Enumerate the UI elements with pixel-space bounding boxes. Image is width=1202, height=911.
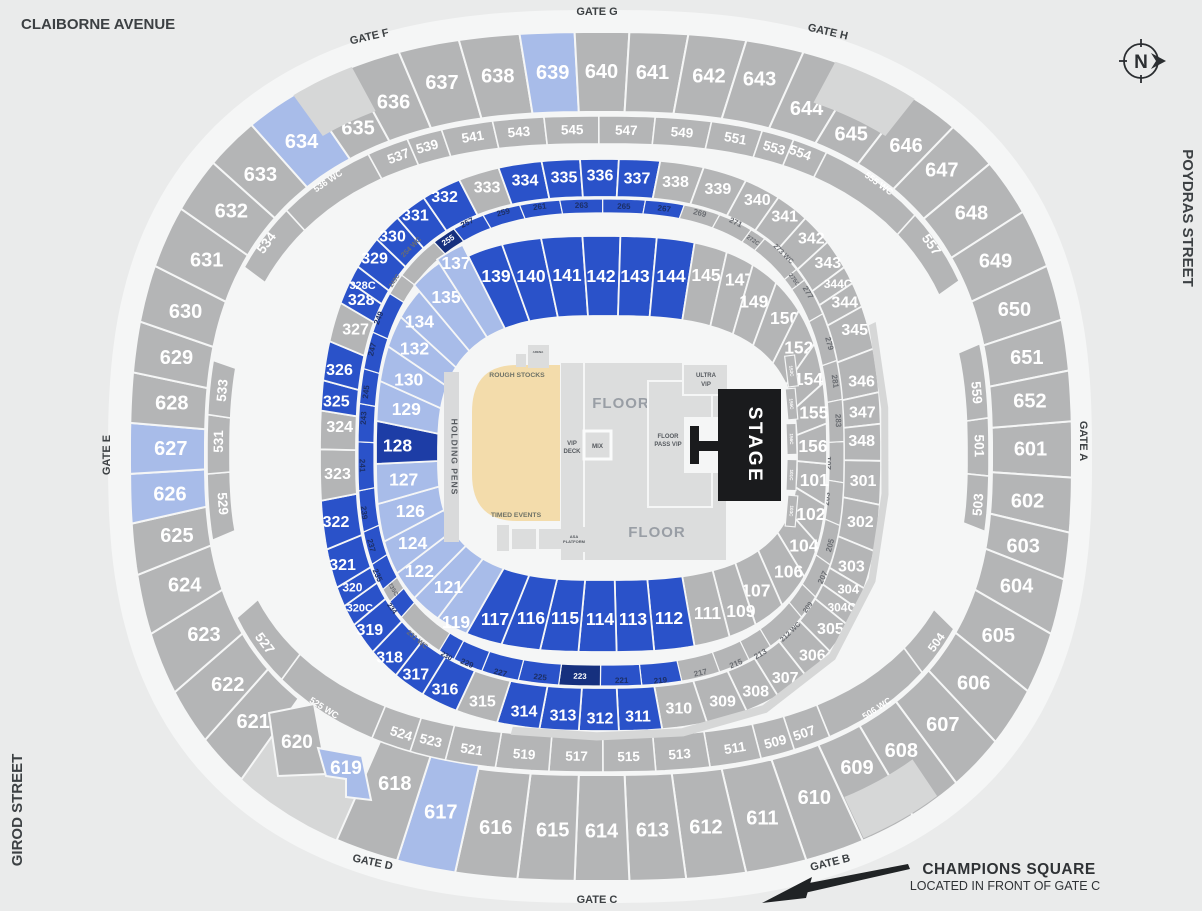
svg-text:LOCATED IN FRONT OF GATE C: LOCATED IN FRONT OF GATE C [910,879,1100,893]
svg-text:317: 317 [402,667,429,684]
svg-text:647: 647 [925,160,958,182]
svg-text:155: 155 [799,403,828,423]
svg-text:DECK: DECK [563,449,581,455]
svg-text:627: 627 [154,438,187,460]
svg-text:606: 606 [957,673,990,695]
svg-text:327: 327 [342,322,369,339]
svg-text:612: 612 [689,817,722,839]
svg-text:112: 112 [655,608,683,628]
svg-text:513: 513 [668,746,692,763]
svg-text:318: 318 [376,649,403,666]
svg-text:126: 126 [396,501,425,521]
svg-text:603: 603 [1007,536,1040,558]
svg-text:529: 529 [214,492,231,516]
svg-text:312: 312 [587,711,614,728]
svg-text:GATE A: GATE A [1077,421,1089,461]
svg-text:333: 333 [474,179,501,196]
svg-text:649: 649 [979,250,1012,272]
svg-text:613: 613 [636,820,669,842]
svg-text:MIX: MIX [592,443,604,450]
svg-text:335: 335 [551,170,578,187]
svg-text:632: 632 [215,200,248,222]
svg-text:615: 615 [536,820,569,842]
svg-text:631: 631 [190,249,223,271]
svg-text:604: 604 [1000,575,1034,597]
svg-text:267: 267 [657,203,672,214]
svg-text:339: 339 [705,181,732,198]
svg-text:281: 281 [830,374,841,389]
svg-text:624: 624 [168,574,202,596]
svg-text:POYDRAS STREET: POYDRAS STREET [1179,149,1196,287]
svg-text:618: 618 [378,773,411,795]
svg-text:309: 309 [709,693,736,710]
svg-text:547: 547 [615,123,638,138]
svg-text:348: 348 [848,433,875,450]
svg-text:331: 331 [402,207,429,224]
svg-text:263: 263 [575,201,589,210]
svg-text:PLATFORM: PLATFORM [563,539,586,544]
svg-text:601: 601 [1014,439,1047,461]
svg-text:239: 239 [359,506,370,521]
svg-text:124: 124 [398,533,427,553]
svg-text:626: 626 [153,484,186,506]
svg-text:543: 543 [507,124,531,141]
svg-text:621: 621 [237,711,270,733]
svg-text:111: 111 [694,603,722,623]
svg-text:116: 116 [517,608,545,628]
svg-text:645: 645 [835,123,868,145]
svg-text:142: 142 [586,266,615,286]
svg-text:102: 102 [796,504,825,524]
svg-text:132: 132 [400,338,429,358]
svg-text:CLAIBORNE AVENUE: CLAIBORNE AVENUE [21,16,175,33]
svg-text:642: 642 [692,66,725,88]
svg-text:620: 620 [281,732,313,753]
svg-text:127: 127 [389,469,418,489]
svg-text:622: 622 [211,674,244,696]
svg-text:HOLDING PENS: HOLDING PENS [450,419,460,496]
svg-text:326: 326 [326,362,353,379]
svg-text:628: 628 [155,393,188,415]
svg-text:314: 314 [511,704,538,721]
svg-text:346: 346 [848,374,875,391]
svg-text:221: 221 [615,676,629,685]
svg-text:ULTRA: ULTRA [696,373,717,379]
svg-text:GATE G: GATE G [576,6,617,18]
svg-text:302: 302 [847,514,874,531]
svg-text:PASS VIP: PASS VIP [654,442,681,448]
svg-text:121: 121 [434,577,463,597]
svg-text:130: 130 [394,369,423,389]
svg-text:340: 340 [744,192,771,209]
svg-text:144: 144 [656,266,685,286]
svg-text:616: 616 [479,817,512,839]
svg-text:308: 308 [742,683,769,700]
svg-text:243: 243 [359,411,369,425]
svg-text:140: 140 [516,266,545,286]
svg-text:517: 517 [565,749,588,764]
svg-text:GIROD STREET: GIROD STREET [9,754,26,867]
svg-text:531: 531 [211,430,226,453]
svg-text:N: N [1134,52,1148,73]
svg-text:652: 652 [1013,391,1046,413]
svg-text:FLOOR: FLOOR [658,434,680,440]
svg-text:501: 501 [972,434,987,457]
svg-text:321: 321 [329,557,356,574]
svg-text:343: 343 [814,255,841,272]
svg-text:341: 341 [771,209,798,226]
svg-text:315: 315 [469,694,496,711]
svg-text:113: 113 [619,609,647,629]
svg-text:625: 625 [160,525,193,547]
svg-text:143: 143 [620,266,649,286]
svg-text:639: 639 [536,62,569,84]
svg-text:TIMED EVENTS: TIMED EVENTS [491,512,542,519]
svg-text:342: 342 [798,231,825,248]
svg-text:ARENA: ARENA [533,350,545,354]
svg-text:609: 609 [840,757,873,779]
svg-text:629: 629 [160,347,193,369]
svg-text:CHAMPIONS SQUARE: CHAMPIONS SQUARE [922,861,1095,878]
svg-text:329: 329 [361,250,388,267]
svg-text:156C: 156C [789,433,794,445]
svg-text:638: 638 [481,65,514,87]
svg-text:311: 311 [625,709,651,726]
svg-text:304: 304 [837,581,859,596]
svg-text:128: 128 [383,435,412,455]
svg-text:610: 610 [798,787,831,809]
svg-text:322: 322 [323,514,350,531]
svg-text:129: 129 [392,399,421,419]
svg-text:310: 310 [665,700,692,717]
svg-text:STAGE: STAGE [744,407,765,484]
svg-text:320C: 320C [347,603,373,615]
svg-text:156: 156 [798,436,827,456]
svg-text:334: 334 [512,173,539,190]
svg-text:323: 323 [324,466,351,483]
svg-text:101: 101 [800,470,829,490]
svg-text:602: 602 [1011,490,1044,512]
svg-text:245: 245 [361,384,371,399]
svg-text:GATE C: GATE C [577,894,618,906]
svg-text:338: 338 [662,174,689,191]
svg-text:559: 559 [968,381,985,405]
svg-text:324: 324 [326,419,353,436]
svg-text:114: 114 [586,609,614,629]
svg-text:607: 607 [926,714,959,736]
svg-text:617: 617 [424,801,457,823]
svg-text:519: 519 [512,746,535,762]
svg-text:GATE E: GATE E [101,435,113,475]
svg-text:515: 515 [617,749,640,764]
svg-text:325: 325 [323,394,350,411]
svg-text:101C: 101C [789,469,794,481]
svg-text:630: 630 [169,301,202,323]
svg-text:155C: 155C [788,398,794,410]
svg-text:608: 608 [885,740,918,762]
svg-text:134: 134 [405,311,434,331]
svg-text:337: 337 [624,171,651,188]
svg-text:332: 332 [431,189,458,206]
svg-text:545: 545 [561,122,584,137]
svg-text:347: 347 [849,404,876,421]
svg-text:650: 650 [998,299,1031,321]
svg-text:219: 219 [653,675,668,685]
svg-text:223: 223 [573,672,587,681]
svg-text:FLOOR: FLOOR [592,395,650,412]
svg-text:648: 648 [955,203,988,225]
svg-text:646: 646 [889,135,922,157]
svg-text:623: 623 [187,624,220,646]
svg-text:634: 634 [285,131,319,153]
svg-text:115: 115 [551,608,579,628]
svg-text:319: 319 [356,622,383,639]
svg-text:149: 149 [739,291,768,311]
svg-text:106: 106 [774,562,803,582]
svg-text:301: 301 [850,473,877,490]
svg-text:330: 330 [379,229,406,246]
svg-text:104: 104 [789,535,818,555]
svg-text:637: 637 [425,72,458,94]
svg-text:145: 145 [691,265,720,285]
svg-text:261: 261 [533,201,548,212]
svg-text:344: 344 [831,295,858,312]
svg-text:139: 139 [481,266,510,286]
svg-text:336: 336 [587,168,614,185]
svg-text:643: 643 [743,69,776,91]
svg-text:137: 137 [441,253,470,273]
svg-text:651: 651 [1010,347,1043,369]
svg-text:103C: 103C [788,505,794,517]
svg-text:225: 225 [533,672,548,682]
svg-text:328C: 328C [349,280,375,292]
svg-text:503: 503 [970,492,987,516]
svg-text:265: 265 [617,202,631,211]
svg-text:345: 345 [841,322,868,339]
svg-text:283: 283 [833,414,843,428]
svg-text:633: 633 [244,164,277,186]
svg-text:117: 117 [481,609,509,629]
svg-text:141: 141 [552,265,581,285]
svg-text:619: 619 [330,758,362,779]
svg-text:241: 241 [358,459,367,473]
svg-text:313: 313 [550,708,577,725]
svg-text:FLOOR: FLOOR [628,524,686,541]
svg-text:636: 636 [377,91,410,113]
svg-text:303: 303 [838,559,865,576]
svg-text:VIP: VIP [701,382,711,388]
svg-text:605: 605 [982,625,1015,647]
svg-text:316: 316 [432,682,459,699]
svg-text:119: 119 [442,612,470,632]
svg-text:533: 533 [214,378,231,402]
svg-text:641: 641 [636,62,669,84]
svg-text:640: 640 [585,61,618,83]
svg-text:611: 611 [746,807,778,829]
svg-text:ROUGH STOCKS: ROUGH STOCKS [489,372,545,379]
svg-text:VIP: VIP [567,441,577,447]
svg-text:549: 549 [670,124,694,141]
svg-text:614: 614 [585,821,619,843]
svg-text:109: 109 [726,601,755,621]
